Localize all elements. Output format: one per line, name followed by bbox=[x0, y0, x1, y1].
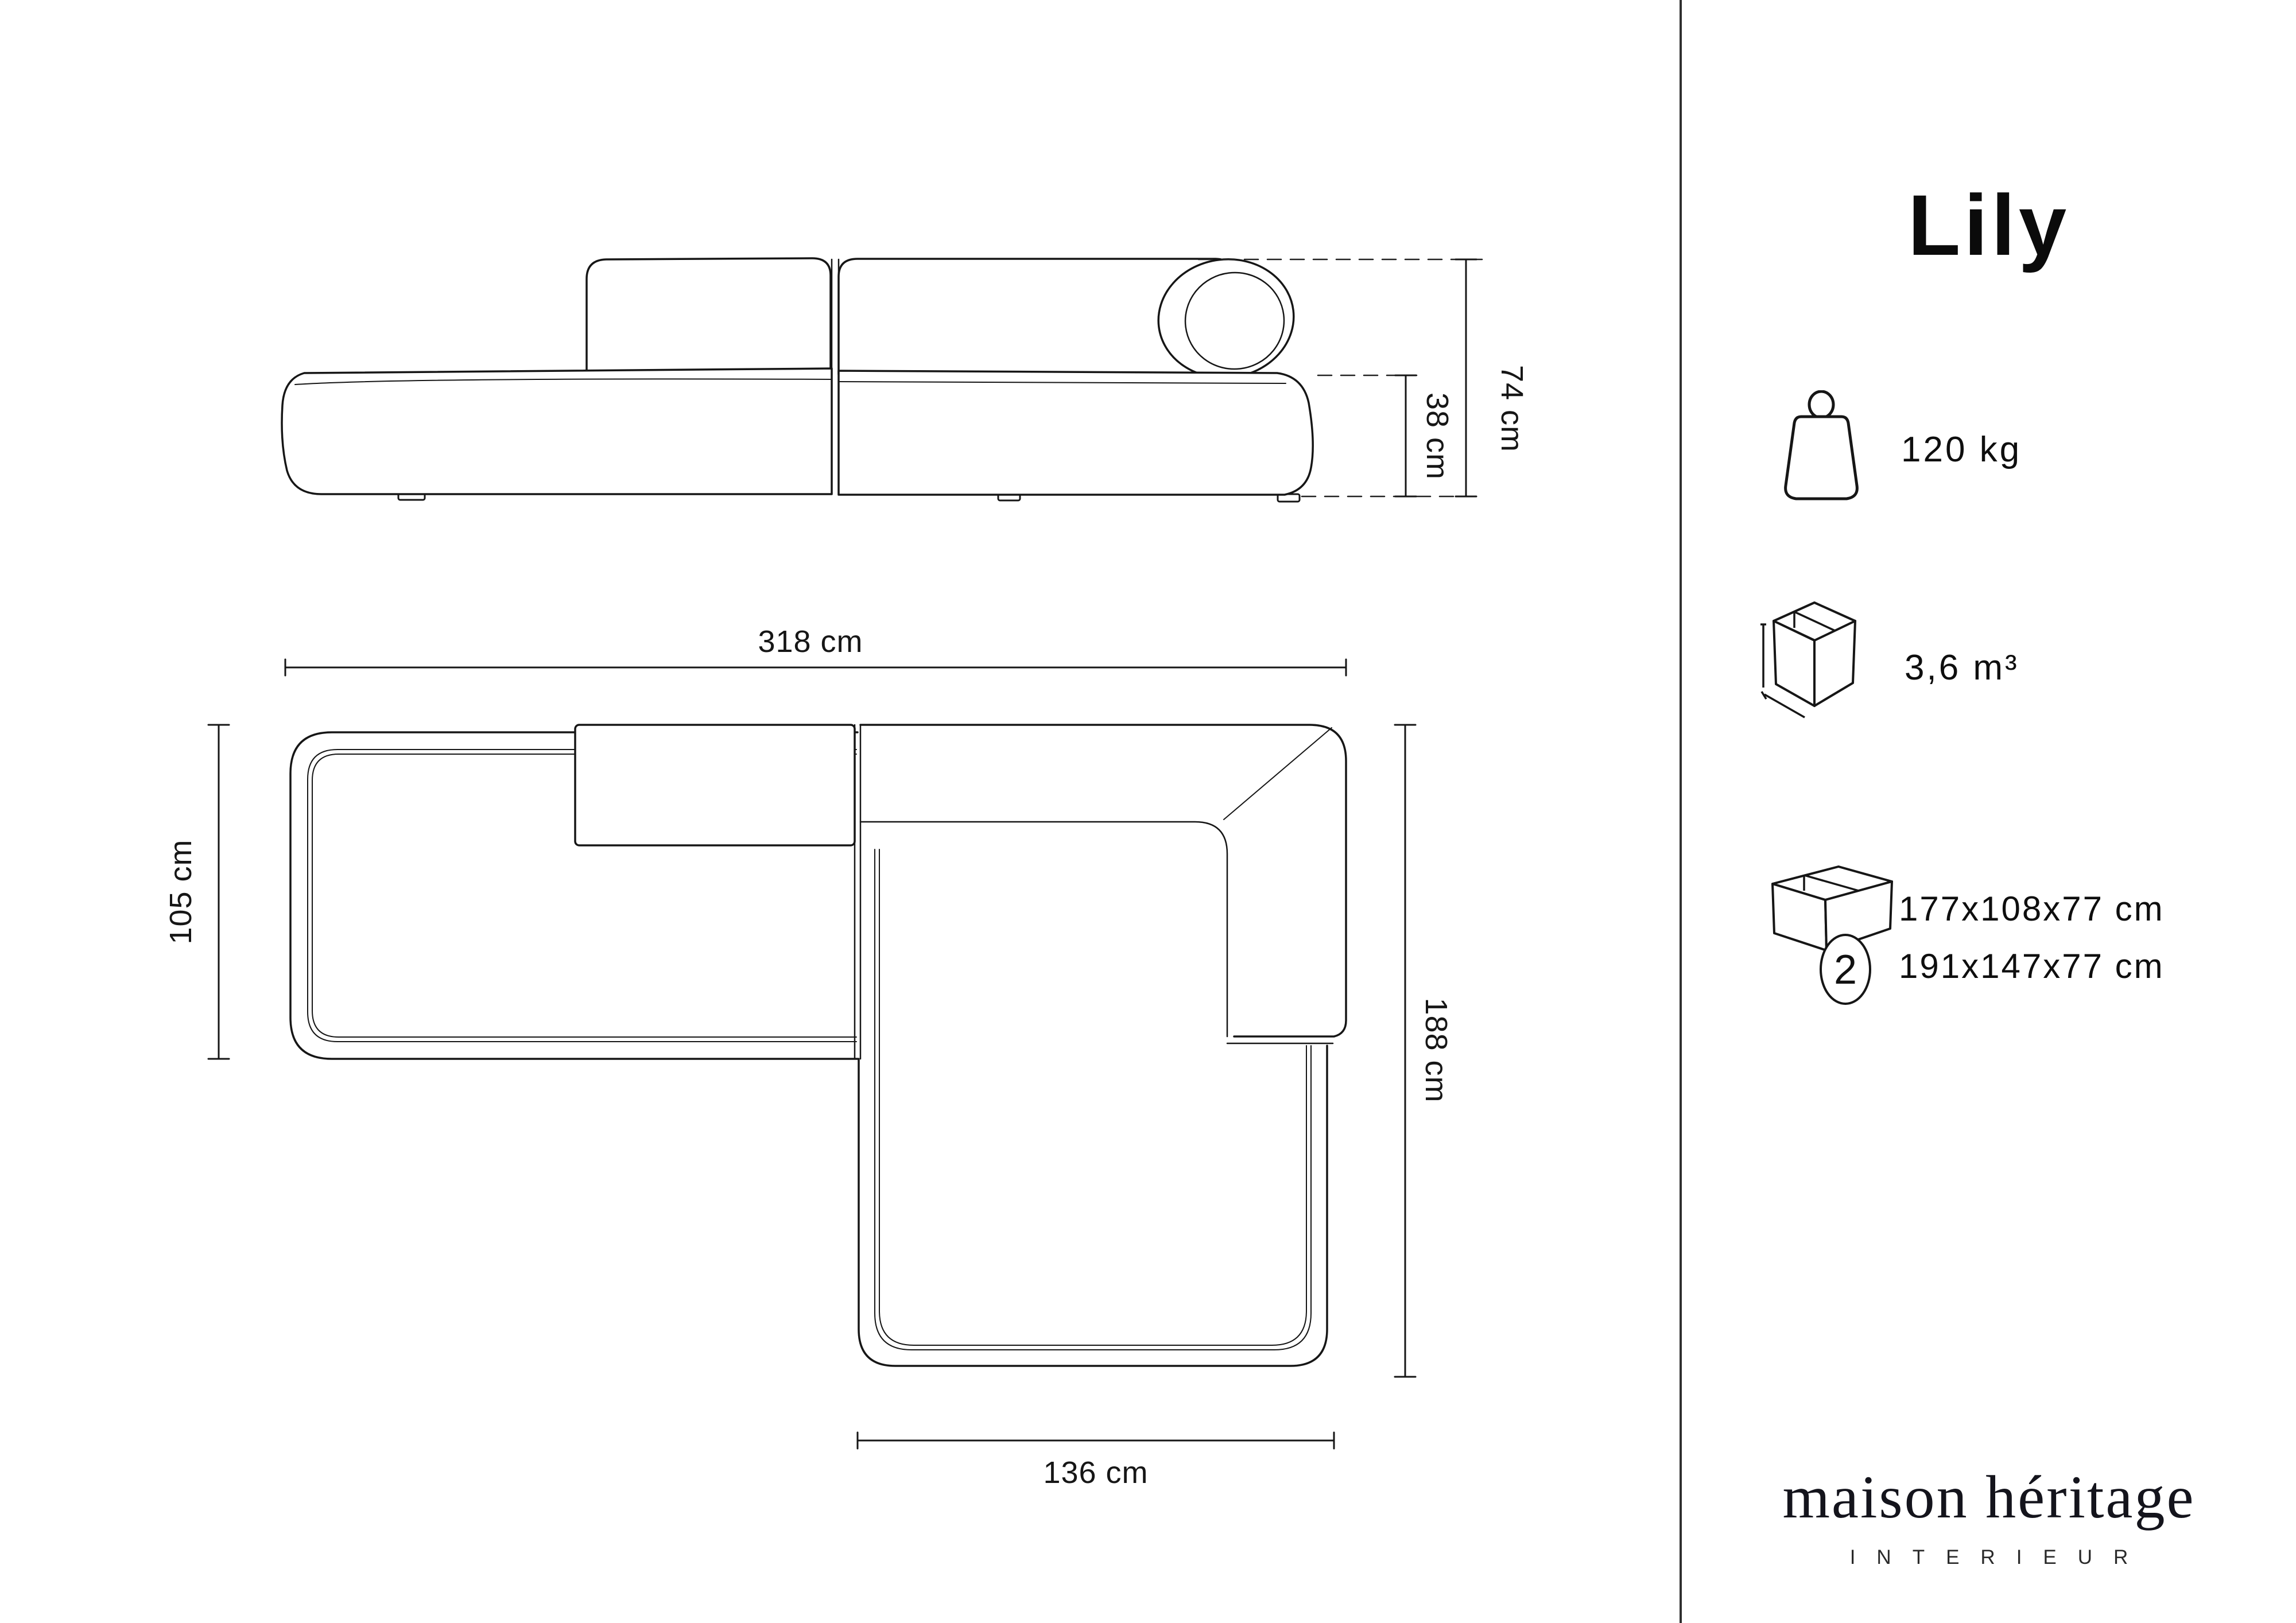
package-count-value: 2 bbox=[1834, 947, 1857, 993]
package-size-line: 191x147x77 cm bbox=[1899, 938, 2165, 995]
dim-chaise-depth-label: 105 cm bbox=[164, 839, 198, 944]
dim-total-depth bbox=[1395, 725, 1415, 1377]
max-weight-icon bbox=[1781, 390, 1861, 504]
dim-total-width-label: 318 cm bbox=[758, 624, 863, 659]
dim-longchair-width-label: 136 cm bbox=[1043, 1455, 1148, 1490]
top-backrest-left bbox=[575, 725, 855, 845]
volume-box-icon bbox=[1759, 597, 1871, 739]
backrest-left bbox=[587, 258, 831, 374]
dim-total-width bbox=[285, 659, 1346, 675]
technical-drawing: 38 cm 74 cm bbox=[0, 0, 1682, 1623]
brand-logo: maison héritage INTERIEUR bbox=[1682, 1462, 2296, 1569]
spec-volume-value: 3,6 m³ bbox=[1905, 647, 2019, 688]
package-size-line: 177x108x77 cm bbox=[1899, 880, 2165, 938]
package-box-icon: 2 bbox=[1761, 859, 1896, 1009]
brand-tagline: INTERIEUR bbox=[1682, 1546, 2296, 1569]
top-corner-diagonal-seam bbox=[1224, 728, 1332, 820]
dim-seat-height bbox=[1395, 375, 1416, 496]
spec-packaging-values: 177x108x77 cm 191x147x77 cm bbox=[1899, 880, 2165, 995]
dim-chaise-depth bbox=[208, 725, 229, 1059]
brand-name: maison héritage bbox=[1682, 1462, 2296, 1532]
product-spec-sheet: 38 cm 74 cm bbox=[0, 0, 2296, 1623]
product-title: Lily bbox=[1682, 176, 2296, 275]
sofa-side-view: 38 cm 74 cm bbox=[282, 251, 1529, 502]
dim-total-height bbox=[1456, 259, 1476, 496]
corner-seat-module bbox=[839, 371, 1313, 495]
top-corner-module-outline bbox=[860, 725, 1346, 1036]
dim-longchair-width bbox=[858, 1432, 1334, 1449]
spec-weight-value: 120 kg bbox=[1901, 429, 2022, 470]
top-corner-module-inner bbox=[860, 822, 1227, 1036]
dim-seat-height-label: 38 cm bbox=[1420, 393, 1455, 480]
module-seam bbox=[832, 259, 839, 492]
chaise-module bbox=[282, 368, 832, 494]
sofa-top-view: 318 cm 105 cm 188 cm bbox=[164, 624, 1453, 1490]
top-longchair-cushion bbox=[875, 849, 1311, 1350]
info-panel: Lily 120 kg 3,6 m³ bbox=[1682, 0, 2296, 1623]
dim-total-depth-label: 188 cm bbox=[1419, 997, 1453, 1102]
package-count-badge: 2 bbox=[1821, 935, 1870, 1004]
dim-total-height-label: 74 cm bbox=[1495, 365, 1529, 452]
top-longchair-outline bbox=[859, 1046, 1327, 1366]
